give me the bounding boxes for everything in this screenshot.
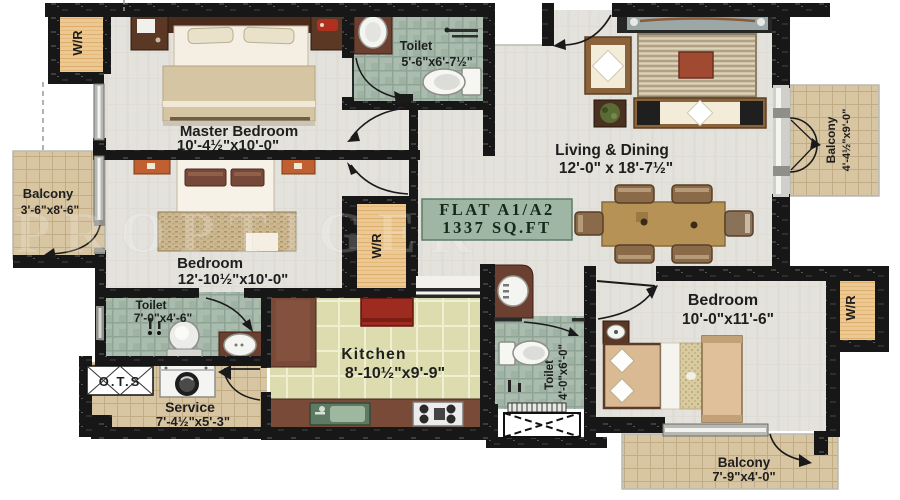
svg-text:Toilet: Toilet <box>544 360 556 390</box>
svg-text:W/R: W/R <box>369 233 384 259</box>
svg-text:Toilet: Toilet <box>135 298 166 312</box>
svg-text:12'-10½"x10'-0": 12'-10½"x10'-0" <box>178 271 289 288</box>
svg-text:4'-0"x6'-0": 4'-0"x6'-0" <box>558 344 570 400</box>
svg-text:1337 SQ.FT: 1337 SQ.FT <box>442 218 551 237</box>
svg-text:4'-4½"x9'-0": 4'-4½"x9'-0" <box>841 109 853 172</box>
svg-text:8'-10½"x9'-9": 8'-10½"x9'-9" <box>345 365 445 382</box>
svg-text:W/R: W/R <box>70 30 85 56</box>
svg-text:Living & Dining: Living & Dining <box>555 142 669 159</box>
svg-text:FLAT A1/A2: FLAT A1/A2 <box>439 200 555 219</box>
svg-text:O.T.S: O.T.S <box>99 374 142 389</box>
svg-text:Service: Service <box>165 399 215 415</box>
svg-text:12'-0" x 18'-7½": 12'-0" x 18'-7½" <box>559 160 673 177</box>
svg-text:Balcony: Balcony <box>718 455 771 470</box>
svg-text:Bedroom: Bedroom <box>688 292 758 309</box>
svg-text:PROPTIGER: PROPTIGER <box>15 200 486 265</box>
svg-text:5'-6"x6'-7½": 5'-6"x6'-7½" <box>401 55 472 69</box>
svg-text:7'-9"x4'-0": 7'-9"x4'-0" <box>712 469 775 484</box>
svg-text:Toilet: Toilet <box>400 39 433 53</box>
svg-text:10'-4½"x10'-0": 10'-4½"x10'-0" <box>177 137 279 154</box>
svg-text:Balcony: Balcony <box>824 116 838 163</box>
svg-text:Kitchen: Kitchen <box>341 346 406 363</box>
svg-text:10'-0"x11'-6": 10'-0"x11'-6" <box>682 311 774 328</box>
svg-text:Balcony: Balcony <box>23 186 74 201</box>
svg-text:W/R: W/R <box>843 295 858 321</box>
svg-text:7'-0"x4'-6": 7'-0"x4'-6" <box>134 311 192 325</box>
svg-text:7'-4½"x5'-3": 7'-4½"x5'-3" <box>156 414 230 429</box>
svg-text:3'-6"x8'-6": 3'-6"x8'-6" <box>21 203 79 217</box>
svg-text:Bedroom: Bedroom <box>177 255 243 272</box>
